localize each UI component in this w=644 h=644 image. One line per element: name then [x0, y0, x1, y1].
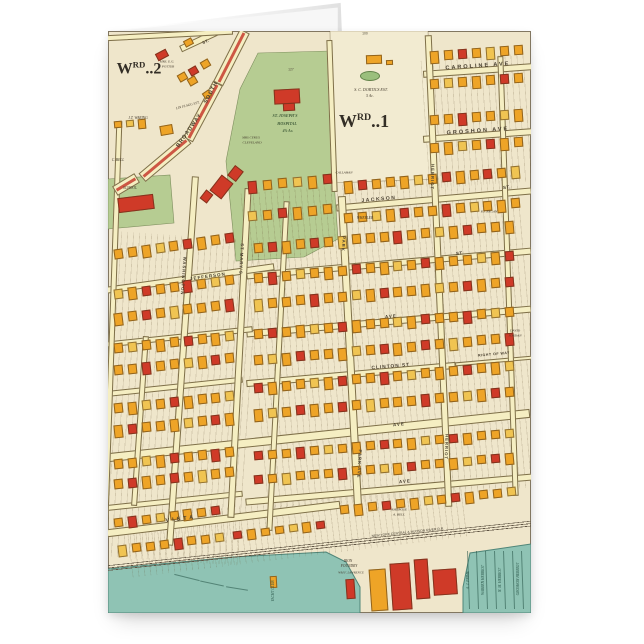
building [393, 260, 403, 271]
building [169, 306, 180, 320]
water-owner-name: GROSHON HERRIOT [517, 563, 521, 596]
building [393, 230, 403, 244]
building [211, 301, 221, 312]
building [196, 237, 207, 251]
building [127, 477, 137, 488]
building [430, 51, 440, 65]
map-label: C. BELL [112, 159, 125, 163]
building [435, 393, 445, 404]
building [169, 473, 179, 484]
building [353, 503, 363, 516]
building [444, 50, 454, 61]
building [421, 436, 431, 446]
building [463, 364, 473, 375]
building [197, 470, 207, 484]
estate-pond [360, 71, 380, 81]
building [491, 222, 501, 233]
building [455, 203, 465, 214]
building [141, 340, 151, 351]
card-fold-back-panel [110, 2, 343, 32]
building [449, 282, 459, 293]
building [337, 321, 347, 332]
building [295, 379, 305, 390]
building [486, 75, 496, 86]
building [169, 337, 179, 348]
building [486, 111, 496, 122]
building [254, 355, 264, 366]
ward-label-part: ..1 [371, 111, 389, 131]
building [497, 167, 507, 178]
building [295, 295, 305, 306]
building [463, 224, 473, 235]
building [224, 233, 234, 244]
building [211, 448, 221, 462]
map-label: AMBROSE [391, 508, 407, 512]
building [505, 307, 515, 318]
building [485, 47, 495, 61]
building [435, 313, 445, 324]
building [141, 285, 151, 296]
building [183, 471, 193, 482]
building [322, 204, 332, 215]
building [127, 287, 138, 301]
building [513, 45, 523, 56]
building [435, 283, 445, 294]
building-landmark [283, 103, 295, 112]
building [399, 208, 409, 219]
building [141, 309, 151, 320]
map-label: WM F. LAWRENCE [338, 571, 364, 574]
building [491, 278, 501, 289]
building [145, 541, 155, 551]
building [407, 395, 417, 406]
building [187, 536, 197, 546]
building [351, 320, 361, 334]
building [307, 175, 317, 189]
building-landmark [389, 562, 412, 610]
building [421, 394, 431, 408]
building [155, 398, 165, 409]
building [351, 290, 361, 301]
building [113, 517, 123, 527]
building [155, 474, 165, 485]
building [513, 137, 523, 148]
building [141, 476, 151, 490]
building [309, 294, 319, 308]
building [281, 380, 291, 391]
building [169, 397, 179, 408]
building [183, 304, 193, 315]
building [491, 308, 501, 319]
building [379, 232, 389, 243]
building [169, 453, 179, 464]
building [114, 365, 124, 376]
building [337, 291, 347, 302]
building [379, 262, 389, 276]
building [292, 207, 302, 221]
map-label: 127 [288, 68, 294, 71]
building [351, 374, 361, 385]
building [430, 115, 440, 126]
building [505, 251, 515, 262]
building [254, 329, 264, 340]
building [479, 490, 489, 500]
building [343, 181, 353, 195]
map-label: P.J. REGAN [481, 210, 498, 213]
building [141, 514, 151, 524]
building [169, 419, 179, 433]
building [309, 404, 319, 418]
water-owner-name: A. J. PRIME [467, 571, 471, 589]
building [505, 387, 515, 398]
map-label: CLEVELAND [242, 141, 261, 144]
building [114, 121, 123, 129]
building [393, 396, 403, 407]
map-label: HOSPITAL [277, 122, 297, 126]
building [458, 77, 468, 88]
building [430, 143, 440, 154]
building-landmark [369, 568, 389, 611]
building [491, 430, 501, 440]
building [513, 109, 523, 123]
building [113, 248, 123, 259]
building [197, 450, 207, 461]
building [337, 443, 347, 453]
building [340, 505, 350, 515]
building [268, 353, 278, 364]
building [463, 280, 473, 291]
building [211, 332, 221, 346]
building [393, 286, 403, 297]
building [477, 431, 487, 441]
building [323, 293, 333, 304]
greeting-card-front: A. J. PRIMEWARREN HERRIOTN. M. HERRIOTGR… [108, 31, 531, 613]
building [309, 350, 319, 361]
building [449, 338, 459, 352]
water-owner-name: N. M. HERRIOT [499, 568, 503, 592]
building [351, 234, 361, 245]
building [224, 299, 235, 313]
building [407, 461, 417, 471]
building [393, 462, 403, 475]
building [458, 141, 468, 152]
building [505, 277, 515, 288]
building [323, 403, 333, 414]
map-label: 100 [362, 32, 368, 35]
dortics-estate [330, 31, 434, 183]
building [127, 516, 137, 529]
building [248, 211, 258, 222]
building [449, 458, 459, 471]
building [365, 319, 375, 330]
building [365, 373, 375, 384]
building [463, 456, 473, 466]
building [337, 347, 347, 361]
building [183, 357, 193, 368]
building [246, 529, 256, 541]
building [477, 389, 487, 403]
building [281, 472, 291, 485]
building [472, 140, 482, 151]
building [281, 270, 291, 281]
map-label: MRS CYRUS [242, 136, 260, 139]
building [393, 342, 403, 356]
building [504, 221, 514, 235]
building [513, 73, 523, 84]
building [183, 335, 193, 346]
building [486, 139, 496, 150]
map-label: MRS. E.G. [160, 60, 175, 63]
building [309, 324, 319, 335]
building [302, 522, 312, 534]
building [295, 239, 305, 250]
building [379, 372, 389, 386]
building [169, 241, 179, 252]
building [253, 299, 263, 313]
building [507, 487, 517, 497]
building [215, 533, 225, 543]
building [225, 413, 235, 427]
building [201, 534, 211, 544]
building [472, 112, 482, 123]
building [211, 392, 221, 403]
building [323, 445, 333, 455]
building [295, 351, 305, 362]
building [385, 209, 395, 223]
building [323, 267, 333, 281]
building [117, 544, 127, 557]
building [277, 208, 287, 219]
building [379, 464, 389, 474]
building [379, 288, 389, 299]
building [114, 403, 124, 414]
building [254, 273, 264, 284]
map-label: WRD..2 [117, 60, 162, 77]
map-label: SCHOOL [123, 187, 137, 191]
building [281, 326, 291, 337]
building-landmark [432, 568, 458, 596]
building [225, 447, 235, 458]
building [477, 455, 487, 465]
map-label: ST MARY'S [238, 243, 244, 275]
building [247, 181, 257, 195]
building [337, 265, 347, 276]
building [225, 391, 235, 402]
building [197, 394, 207, 405]
water-owner-name: YACHT CLUB [272, 581, 276, 602]
building [365, 441, 375, 451]
building [183, 417, 193, 428]
building [155, 338, 165, 352]
map-label: J.T. WARING [128, 117, 147, 121]
building [337, 467, 347, 480]
building [451, 493, 461, 503]
building [444, 78, 454, 89]
building [211, 506, 221, 516]
building [155, 420, 165, 431]
building [413, 207, 423, 218]
building [225, 353, 235, 364]
building [407, 229, 417, 240]
building [371, 178, 381, 189]
building [463, 310, 473, 324]
building [141, 456, 151, 467]
building [351, 264, 361, 275]
building [173, 538, 183, 551]
building [260, 527, 270, 536]
building [127, 311, 137, 322]
building [465, 491, 475, 504]
building [263, 209, 273, 220]
building [407, 259, 417, 270]
building [281, 240, 291, 254]
building [511, 166, 521, 180]
building [127, 341, 137, 352]
building [183, 239, 193, 250]
building [477, 279, 487, 293]
building [407, 341, 417, 352]
building-landmark [345, 579, 355, 600]
building [127, 363, 137, 374]
building [365, 399, 375, 413]
building [155, 512, 165, 522]
building [358, 179, 368, 190]
map-label: HERRIOT [443, 434, 448, 460]
building [254, 243, 264, 254]
building [141, 245, 152, 259]
building [499, 46, 509, 57]
building [407, 437, 417, 450]
building [458, 49, 468, 60]
building [141, 362, 151, 376]
building [413, 175, 423, 186]
building [309, 470, 319, 480]
map-label: 4⅞ Ac. [283, 130, 294, 134]
building [114, 343, 124, 354]
building [499, 74, 509, 85]
building [295, 471, 305, 481]
building [471, 76, 481, 90]
building [233, 530, 243, 539]
building [155, 243, 165, 254]
building [155, 307, 165, 318]
building [365, 233, 375, 244]
building [463, 336, 473, 347]
building [493, 488, 503, 498]
building [211, 468, 221, 479]
building [499, 138, 509, 152]
building [351, 400, 361, 411]
building [127, 423, 137, 434]
building [141, 400, 151, 411]
building [399, 176, 409, 190]
building [455, 171, 465, 185]
ward-label-part: W [339, 111, 357, 131]
building [421, 340, 431, 351]
building [267, 271, 277, 285]
ward-label-part: W [117, 61, 133, 78]
building [421, 228, 431, 239]
building [423, 496, 433, 506]
building [274, 525, 284, 534]
building [281, 352, 291, 366]
water-owner-name: WARREN HERRIOT [482, 565, 486, 595]
building [457, 113, 467, 127]
building-landmark [414, 559, 431, 600]
building [254, 451, 264, 461]
building [427, 205, 437, 216]
building [444, 114, 454, 125]
map-label: ST. [503, 185, 511, 190]
building [441, 172, 451, 183]
building [323, 469, 333, 479]
map-label: A. BELL [393, 513, 405, 517]
building [268, 241, 278, 252]
building [365, 345, 375, 356]
building [268, 327, 278, 338]
building [497, 199, 507, 213]
map-label: POTTER [162, 65, 174, 68]
building [365, 465, 375, 475]
building [491, 388, 501, 399]
building [169, 282, 179, 293]
map-label: CALLAHAN [336, 171, 353, 174]
building [463, 390, 473, 401]
building [444, 142, 454, 156]
building [295, 269, 305, 280]
building [435, 339, 445, 350]
map-label: JORDAN [508, 334, 521, 338]
building [505, 361, 515, 372]
building [441, 204, 451, 218]
building [323, 237, 333, 248]
building [141, 422, 151, 433]
building [254, 475, 264, 485]
building [421, 258, 431, 269]
building [449, 256, 459, 267]
map-label: WHEELER [357, 217, 373, 221]
building [292, 177, 302, 188]
building [379, 440, 389, 450]
building [449, 312, 459, 323]
building [197, 334, 207, 345]
building [407, 369, 417, 380]
building [197, 302, 207, 313]
map-label: WRD..1 [339, 112, 389, 130]
building [421, 284, 431, 298]
map-label: ST. JOSEPH'S [273, 114, 298, 118]
map-label: PARK [340, 236, 345, 252]
building [268, 449, 278, 459]
ward-label-part: RD [357, 112, 371, 123]
map-label: DAVID [510, 329, 520, 333]
map-label: FOUNDRY [341, 565, 358, 569]
building-landmark [386, 60, 393, 65]
building [499, 110, 509, 121]
building [381, 500, 391, 510]
map-label: HERRIOT [429, 164, 434, 190]
building-landmark [366, 55, 382, 65]
map-label: S. C. DORTICS EST. [354, 88, 387, 92]
building [267, 381, 277, 395]
building [483, 168, 493, 179]
building [253, 409, 263, 423]
building [407, 285, 417, 296]
building [309, 446, 319, 456]
building [127, 401, 137, 415]
building [197, 356, 207, 370]
building [316, 520, 326, 529]
